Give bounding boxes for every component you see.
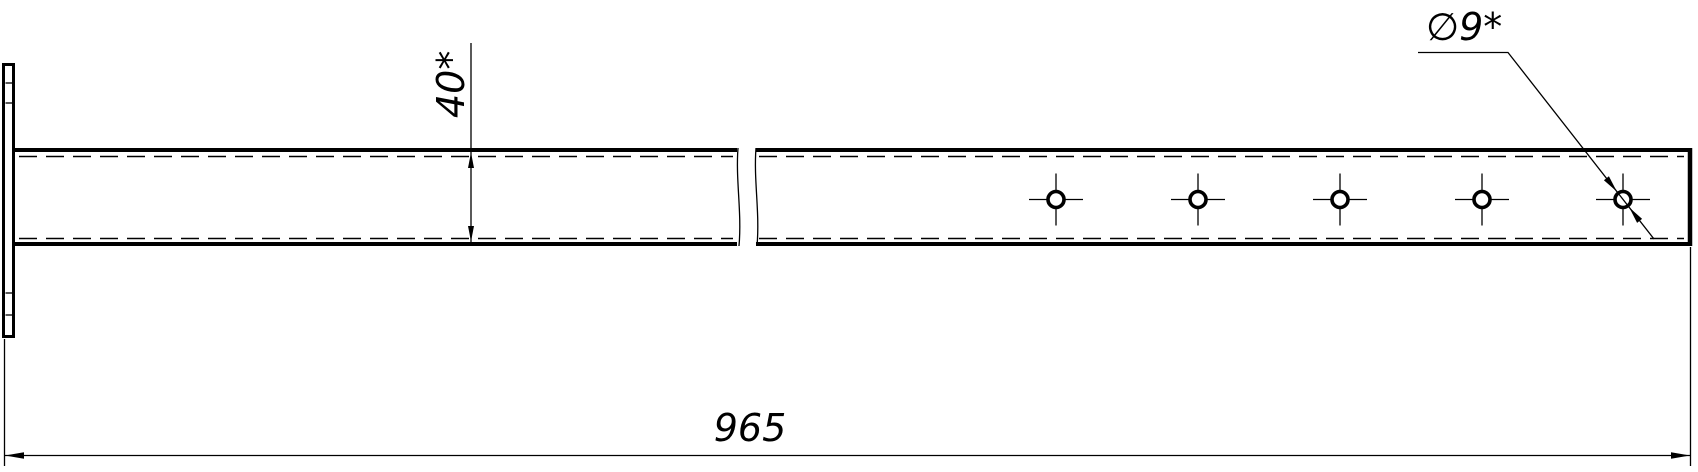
drawing-sheet: 40* 965 ∅9* — [0, 0, 1698, 472]
flange-plate — [4, 65, 14, 337]
hole — [1455, 174, 1509, 226]
length-dimension-label: 965 — [714, 406, 787, 450]
leader-line — [1418, 53, 1654, 240]
length-dimension: 965 — [5, 247, 1691, 466]
break-line-left — [737, 148, 739, 246]
break-line-right — [755, 148, 757, 246]
height-dimension: 40* — [429, 43, 474, 243]
holes-group — [1029, 174, 1650, 226]
hole-diameter-label: ∅9* — [1426, 5, 1502, 49]
flange-plate-outline — [4, 65, 14, 337]
hole-circle — [1048, 192, 1064, 208]
hole — [1029, 174, 1083, 226]
height-dimension-label: 40* — [429, 51, 473, 118]
hole — [1313, 174, 1367, 226]
hole-circle — [1332, 192, 1348, 208]
hole — [1171, 174, 1225, 226]
length-dimension-arrow-right — [1671, 452, 1690, 458]
drawing-canvas: 40* 965 ∅9* — [0, 0, 1698, 472]
hole-circle — [1474, 192, 1490, 208]
bar-body — [15, 148, 1690, 246]
hole-circle — [1190, 192, 1206, 208]
length-dimension-arrow-left — [5, 452, 24, 458]
height-dimension-arrow-up — [468, 153, 474, 169]
